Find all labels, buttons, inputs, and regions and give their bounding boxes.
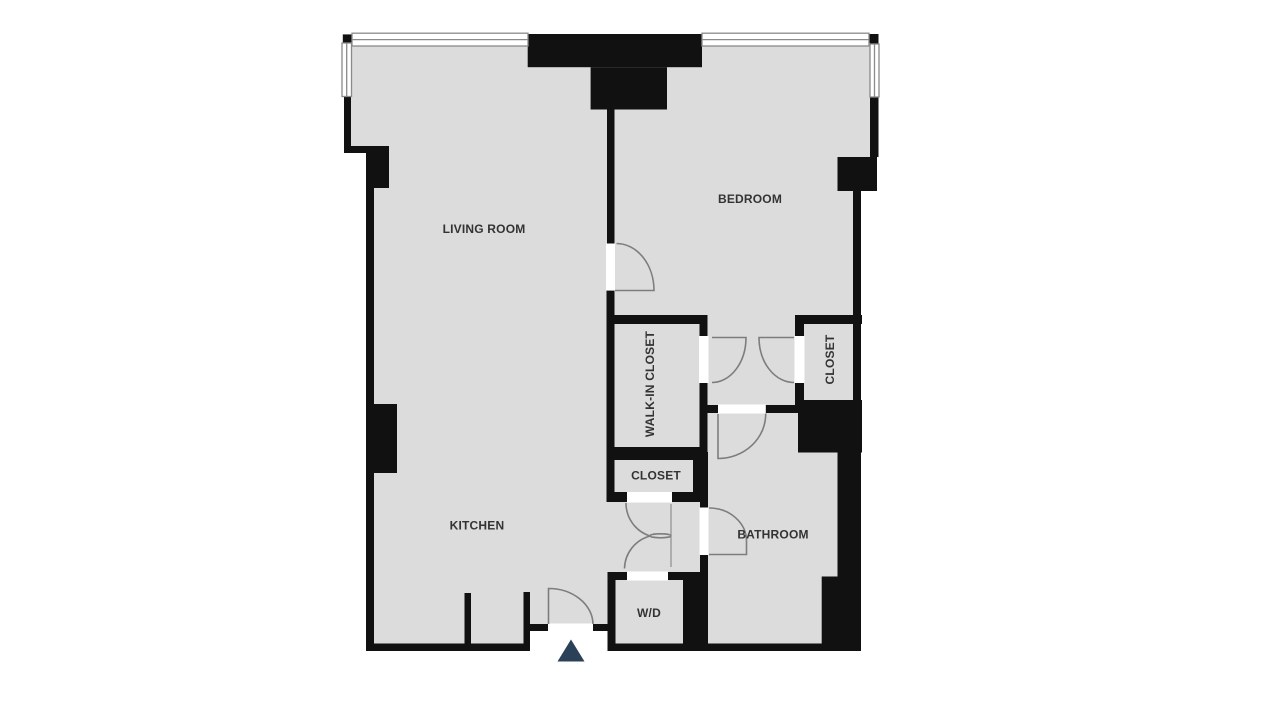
svg-text:KITCHEN: KITCHEN	[450, 519, 505, 533]
svg-text:CLOSET: CLOSET	[823, 334, 837, 384]
svg-text:WALK-IN CLOSET: WALK-IN CLOSET	[643, 330, 657, 437]
svg-text:BEDROOM: BEDROOM	[718, 192, 782, 206]
svg-text:W/D: W/D	[637, 606, 661, 620]
svg-text:CLOSET: CLOSET	[631, 469, 681, 483]
svg-text:BATHROOM: BATHROOM	[737, 528, 808, 542]
svg-text:LIVING ROOM: LIVING ROOM	[443, 222, 526, 236]
